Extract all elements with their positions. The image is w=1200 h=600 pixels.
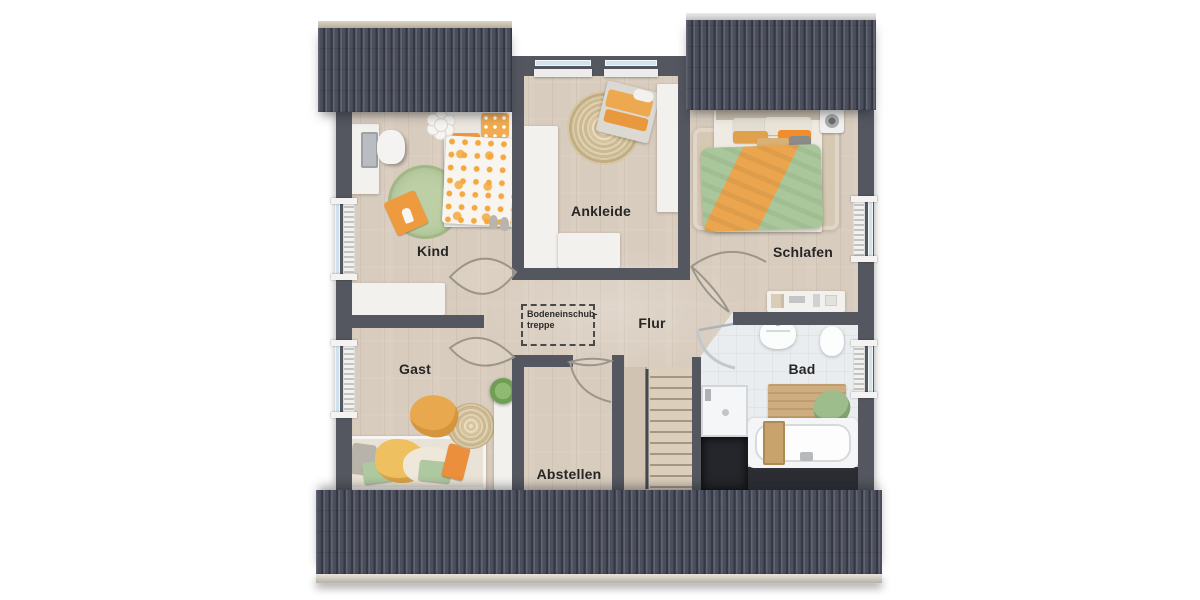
room-label-ankleide: Ankleide xyxy=(571,203,631,219)
schlafen-door-swing xyxy=(692,252,766,266)
room-label-schlafen: Schlafen xyxy=(773,244,833,260)
bad-door-swing xyxy=(697,329,735,368)
kind-door xyxy=(450,259,516,294)
roof-top-right xyxy=(686,20,876,110)
abstellen-door-leaf xyxy=(570,359,611,366)
flower-deco xyxy=(427,110,455,140)
schlafen-door-leaf xyxy=(691,266,729,312)
room-label-bad: Bad xyxy=(788,361,815,377)
floorplan-canvas: Kind Ankleide Schlafen Flur Gast Bad Abs… xyxy=(0,0,1200,600)
attic-hatch: Bodeneinschub- treppe xyxy=(521,304,595,346)
room-label-gast: Gast xyxy=(399,361,431,377)
bad-door-leaf xyxy=(699,324,733,330)
abstellen-door-swing xyxy=(570,362,611,402)
room-label-kind: Kind xyxy=(417,243,449,259)
attic-hatch-label-line2: treppe xyxy=(527,320,589,331)
roof-gutter xyxy=(316,574,882,583)
gast-door xyxy=(450,338,514,366)
roof-bottom xyxy=(316,490,882,574)
room-label-flur: Flur xyxy=(638,315,665,331)
attic-hatch-label-line1: Bodeneinschub- xyxy=(527,309,589,320)
room-label-abstellen: Abstellen xyxy=(537,466,602,482)
roof-top-left xyxy=(318,28,512,112)
